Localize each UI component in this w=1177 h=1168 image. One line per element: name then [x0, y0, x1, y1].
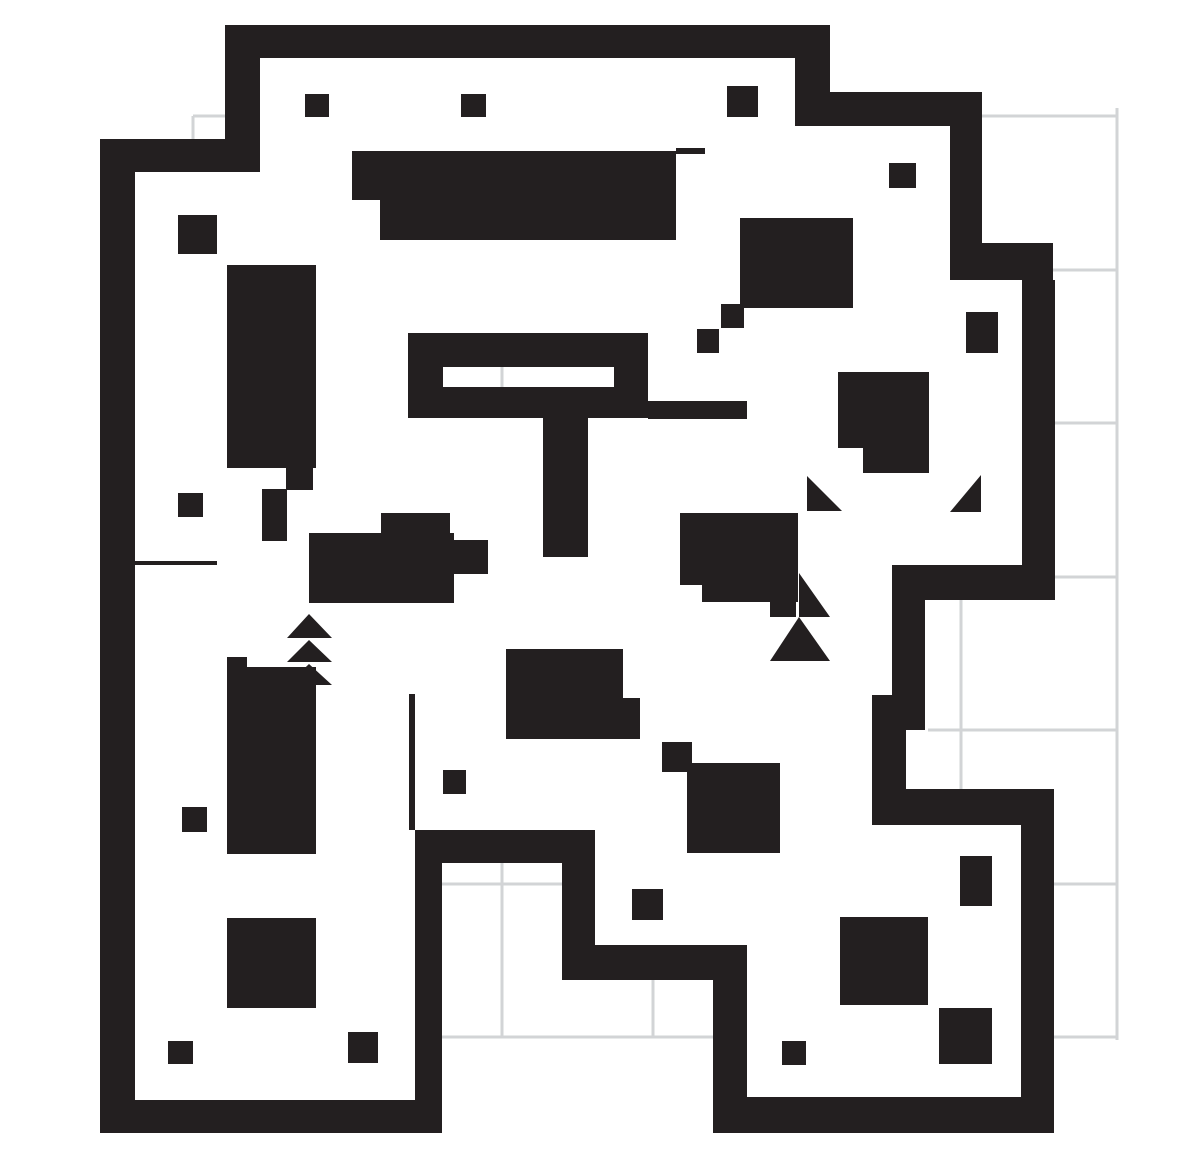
obstacle-rect — [352, 151, 676, 200]
obstacle-rect — [178, 215, 217, 254]
wall-segment — [950, 92, 982, 280]
wall-segment — [135, 561, 217, 565]
obstacle-rect — [286, 468, 313, 490]
obstacle-rect — [740, 218, 853, 308]
wall-segment — [892, 565, 1055, 600]
wall-segment — [100, 1100, 442, 1133]
obstacle-rect — [305, 94, 329, 117]
obstacle-rect — [454, 540, 488, 574]
wall-segment — [415, 863, 442, 1133]
obstacle-rect — [727, 86, 758, 117]
wall-segment — [409, 694, 415, 830]
wall-segment — [100, 139, 135, 1133]
obstacle-rect — [309, 533, 454, 603]
obstacle-rect — [348, 1032, 378, 1063]
obstacle-rect — [770, 602, 796, 617]
obstacle-rect — [227, 265, 316, 468]
wall-segment — [543, 418, 588, 557]
wall-segment — [872, 730, 906, 789]
wall-segment — [713, 980, 747, 1100]
obstacle-rect — [889, 163, 916, 188]
wall-segment — [225, 25, 830, 58]
obstacle-rect — [721, 304, 744, 328]
wall-segment — [713, 1097, 1054, 1133]
wall-segment — [872, 789, 1054, 825]
obstacle-rect — [227, 918, 316, 1008]
obstacle-rect — [506, 649, 623, 739]
obstacle-rect — [687, 763, 780, 853]
obstacle-rect — [227, 657, 247, 667]
floor-plan-canvas — [0, 0, 1177, 1168]
wall-segment — [892, 600, 925, 695]
obstacle-rect — [178, 493, 203, 517]
obstacle-rect — [960, 856, 992, 906]
floor-plan-map — [0, 0, 1177, 1168]
obstacle-rect — [262, 489, 287, 541]
wall-segment — [872, 695, 925, 730]
obstacle-rect — [966, 312, 998, 353]
obstacle-rect — [380, 200, 676, 240]
obstacle-rect — [838, 372, 929, 448]
obstacle-rect — [782, 1041, 806, 1065]
obstacle-rect — [443, 770, 466, 794]
wall-segment — [415, 830, 595, 863]
wall-segment — [978, 243, 1053, 280]
obstacle-rect — [863, 448, 929, 473]
obstacle-rect — [680, 513, 798, 585]
wall-opening — [443, 367, 614, 387]
obstacle-rect — [182, 807, 207, 832]
wall-segment — [562, 945, 747, 980]
obstacle-rect — [702, 585, 798, 602]
obstacle-rect — [461, 94, 486, 117]
wall-segment — [648, 401, 747, 419]
wall-segment — [1021, 825, 1054, 1133]
wall-segment — [562, 863, 595, 945]
obstacle-rect — [697, 329, 719, 353]
wall-segment — [676, 148, 705, 154]
obstacle-rect — [840, 917, 928, 1005]
obstacle-rect — [939, 1008, 992, 1064]
obstacle-rect — [623, 698, 640, 739]
obstacle-rect — [168, 1041, 193, 1064]
obstacle-rect — [227, 667, 316, 854]
obstacle-rect — [632, 889, 663, 920]
obstacle-rect — [381, 513, 450, 533]
wall-segment — [1022, 280, 1055, 600]
